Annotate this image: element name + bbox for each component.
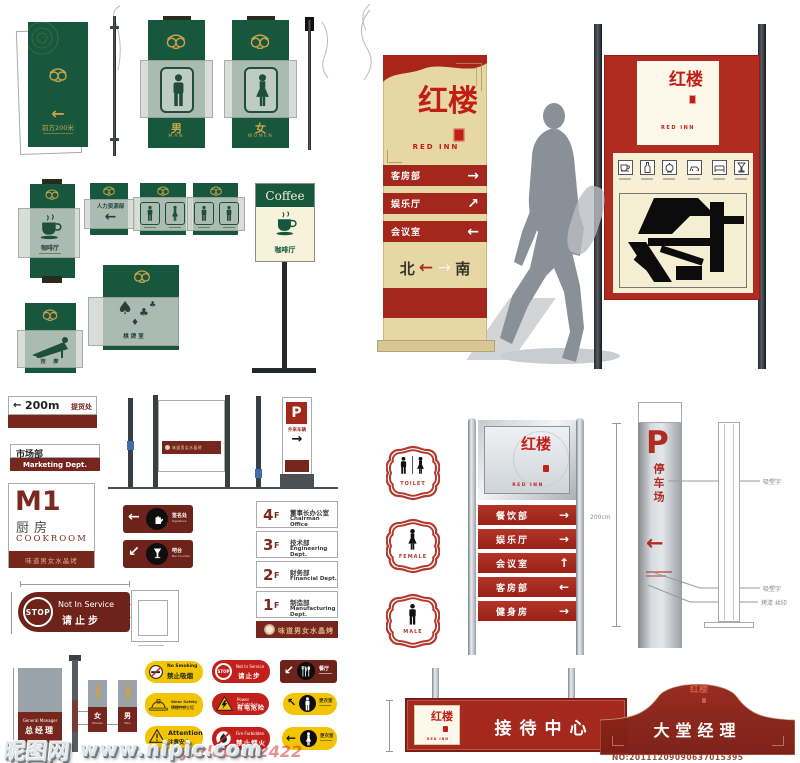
- brand-logo-cn-1: 红楼: [669, 65, 703, 90]
- slat-arrow: ←: [559, 580, 569, 594]
- amenity-bed-icon: [712, 160, 727, 175]
- cutlery-icon: [301, 666, 311, 677]
- coffee-overlay-plate: 咖啡厅: [18, 208, 80, 258]
- male-pictogram-icon: [146, 205, 154, 222]
- hanger-rod: [568, 668, 575, 700]
- amenity-kettle-icon: [662, 160, 677, 175]
- north-label: 北: [400, 258, 415, 279]
- lobby-manager-label: 大堂经理: [620, 717, 775, 741]
- corner-ornament: [612, 736, 624, 746]
- pylon-row: 客房部 →: [383, 165, 487, 186]
- chess-label: 棋牌室: [89, 332, 180, 340]
- slat-label: 客房部: [496, 581, 529, 594]
- ground-line: [108, 487, 338, 489]
- caption-line: [198, 227, 210, 228]
- floor-dept-en: Chairman Office: [290, 516, 337, 528]
- board-map-panel: [613, 153, 753, 293]
- cookroom-label-en: COOKROOM: [16, 534, 88, 544]
- floor-row: 2 F 财务部 Financial Dept.: [256, 561, 338, 588]
- floor-num: 4: [263, 506, 273, 524]
- frame-pole: [225, 395, 230, 488]
- no-smoking-cn: 禁止吸烟: [167, 670, 193, 680]
- floor-row: 4 F 董事长办公室 Chairman Office: [256, 501, 338, 528]
- female-pictogram-icon: [171, 205, 179, 222]
- slat-label: 会议室: [496, 557, 529, 570]
- wc-female-band: 女 Women: [88, 707, 107, 732]
- seal-stamp: [689, 95, 696, 104]
- seal-stamp: [702, 698, 706, 703]
- nipic-logo-watermark: 昵图网: [2, 734, 71, 763]
- serial-watermark: NO:20111209090637015395: [612, 753, 744, 762]
- slat-arrow: ↑: [559, 556, 569, 570]
- reception-label: 接待中心: [467, 714, 622, 739]
- brand-logo-en: RED INN: [637, 125, 719, 131]
- nipic-url-watermark: www.nipic.com: [79, 737, 264, 761]
- dimension-line: [20, 584, 130, 585]
- floor-dept-en: Financial Dept.: [290, 576, 337, 582]
- dimension-tick: [129, 581, 130, 587]
- dimension-line: [11, 592, 12, 634]
- site-map-graphic: [619, 193, 747, 288]
- restaurant-arrow: ↙: [284, 663, 294, 677]
- coffee-cup-icon: [273, 211, 298, 237]
- spec-outline-box: [138, 600, 168, 636]
- female-label-en: WOMEN: [232, 134, 289, 139]
- east-arrow: →: [437, 258, 451, 278]
- signature-arrow: ←: [128, 509, 140, 525]
- amenity-tea-icon: [618, 160, 633, 175]
- banner-text: 味道男女水晶烤: [172, 445, 202, 451]
- pylon-band: [285, 460, 309, 472]
- suit-icon: ♦: [131, 318, 139, 328]
- amenity-pet-icon: [687, 160, 702, 175]
- corner-ornament: [772, 736, 784, 746]
- slat-arrow: →: [559, 532, 569, 546]
- caption-line: [223, 227, 235, 228]
- female-oval-label: FEMALE: [386, 554, 440, 560]
- female-pictogram-icon: [94, 683, 102, 701]
- brand-roundel-icon: [264, 624, 275, 635]
- caption-line: [320, 740, 332, 741]
- bar-label: 吧台: [172, 547, 182, 554]
- pickup-sign-band: [8, 415, 97, 428]
- sign-bottom-tab: [42, 276, 62, 283]
- slat-row: 娱乐厅 →: [478, 529, 576, 549]
- wc-female-label-en: Women: [88, 721, 107, 725]
- gm-label-en: General Manager: [18, 718, 62, 723]
- parking-p: P: [291, 405, 301, 421]
- brand-logo-cn-1: 红楼: [418, 76, 478, 120]
- no-smoking-sign: No Smoking 禁止吸烟: [145, 661, 203, 683]
- cookroom-footer: 味道男女水晶烤: [25, 555, 78, 565]
- pylon-row-arrow: ←: [467, 224, 479, 240]
- locker-room-sign-m: ↖ 更衣室: [283, 693, 337, 715]
- reception-sign: 红楼 RED INN 接待中心: [405, 698, 627, 752]
- power-cn: 有电危险: [237, 703, 265, 712]
- male-label-en: MAN: [148, 134, 205, 139]
- leader-line: [78, 711, 88, 712]
- pylon-row: 会议室 ←: [383, 221, 487, 242]
- brand-emblem-icon: [131, 270, 153, 283]
- suit-icon: ♣: [149, 300, 156, 309]
- caption-line: [144, 227, 156, 228]
- male-pictogram-icon: [304, 697, 311, 711]
- bar-direction-sign: ↙ 吧台 Bar Counter: [123, 540, 193, 568]
- material-note: 吸塑字: [763, 584, 781, 593]
- pickup-200m-sign: ← 200m 提货处: [8, 396, 97, 415]
- parking-p: P: [646, 425, 669, 461]
- pylon-row-label: 会议室: [391, 225, 421, 238]
- toilet-oval-sign: [386, 445, 440, 501]
- floor-dept-en: Manufacturing Dept.: [290, 606, 337, 618]
- divider: [412, 456, 413, 474]
- toilet-oval-label: TOILET: [386, 481, 440, 487]
- pictogram-frame: [194, 202, 214, 225]
- stop-label-en: Not In Service: [58, 600, 114, 609]
- brand-emblem-icon: [101, 186, 117, 196]
- pole-clamp: [110, 26, 119, 29]
- caption-line: [319, 673, 332, 674]
- signature-direction-sign: ← 签名处 Signature: [123, 505, 193, 533]
- male-pictogram-icon: [399, 456, 408, 475]
- west-arrow: ←: [419, 258, 433, 278]
- massage-label: 按 摩: [18, 358, 84, 365]
- slat-label: 健身房: [496, 605, 529, 618]
- slat-label: 娱乐厅: [496, 533, 529, 546]
- banner-label: 前方200米: [28, 122, 88, 132]
- pictogram-frame: [219, 202, 239, 225]
- board-logo-panel: 红楼 RED INN: [637, 61, 719, 145]
- coffee-label: 咖啡厅: [19, 243, 81, 252]
- frame-pylon-post: [576, 418, 584, 655]
- toilet-mini-overlay: [187, 197, 245, 231]
- material-note: 烤漆 丝印: [761, 598, 787, 607]
- restaurant-direction-sign: ↙ 餐厅: [280, 660, 337, 683]
- wc-male-band: 男 Men: [118, 707, 137, 732]
- coffee-post-base: [252, 368, 316, 373]
- slat-row: 客房部 ←: [478, 577, 576, 597]
- locker-arrow: ↖: [287, 696, 296, 709]
- safety-helmet-sign: Wear Safety Helmet 请戴好安全帽: [145, 693, 203, 717]
- floor-suffix: F: [274, 601, 279, 610]
- pylon-side-view: [718, 422, 740, 622]
- marketing-label-en: Marketing Dept.: [23, 461, 87, 469]
- banner-arrow: ←: [28, 104, 88, 123]
- pickup-arrow: ←: [13, 400, 21, 411]
- hard-hat-icon: [149, 697, 168, 712]
- coffee-post-title: Coffee: [265, 189, 304, 203]
- brand-emblem-icon: [163, 34, 189, 49]
- signage-design-sheet: ← 前方200米 男 MAN 女 WOMEN 咖啡厅 人力资源部 ←: [0, 0, 800, 763]
- caption-line: [39, 253, 61, 254]
- signature-label: 签名处: [172, 512, 187, 519]
- pylon-base: [377, 340, 495, 352]
- hand-icon: [151, 513, 163, 525]
- slat-label: 餐饮部: [496, 509, 529, 522]
- brand-emblem-icon: [208, 186, 224, 196]
- male-pictogram-icon: [124, 683, 132, 701]
- banner-logo-icon: [165, 445, 170, 450]
- frame-board: [158, 400, 225, 472]
- cookroom-sign: M1 厨房 COOKROOM 味道男女水晶烤: [8, 483, 95, 568]
- amenity-bottle-icon: [640, 160, 655, 175]
- icon-caption-placeholder: [688, 178, 700, 180]
- brand-logo-en: RED INN: [415, 737, 461, 741]
- wine-glass-icon: [152, 548, 163, 560]
- female-pictogram-icon: [305, 732, 312, 746]
- brand-logo-en: RED INN: [485, 483, 571, 488]
- chess-overlay: ♠ ♣ ♦ ♣ 棋牌室: [88, 297, 179, 346]
- seal-stamp: [453, 128, 465, 142]
- slat-row: 健身房 →: [478, 601, 576, 621]
- frame-pylon-post: [468, 418, 476, 655]
- icon-caption-placeholder: [663, 178, 675, 180]
- male-pictogram-icon: [407, 603, 418, 626]
- female-pictogram-icon: [254, 72, 271, 109]
- coffee-post-label: 咖啡厅: [256, 245, 314, 255]
- hr-overlay-plate: 人力资源部 ←: [84, 199, 135, 229]
- caption-line: [319, 705, 331, 706]
- bar-arrow: ↙: [128, 544, 140, 560]
- slat-arrow: →: [559, 604, 569, 618]
- floor-row: 1 F 制造部 Manufacturing Dept.: [256, 591, 338, 618]
- marketing-sign-band: Marketing Dept.: [10, 458, 100, 471]
- brand-logo-en: RED INN: [384, 143, 488, 151]
- material-note: 吸塑字: [763, 477, 781, 486]
- power-substation-sign: Power Substation 有电危险: [212, 693, 269, 715]
- floor-suffix: F: [274, 571, 279, 580]
- signature-label-en: Signature: [172, 519, 186, 523]
- pole-band: [72, 700, 78, 732]
- wc-male-top: [118, 680, 137, 707]
- seal-stamp: [443, 726, 448, 732]
- dimension-tick: [20, 581, 21, 587]
- floor-row: 3 F 技术部 Engineering Dept.: [256, 531, 338, 558]
- icon-caption-placeholder: [735, 178, 747, 180]
- seal-stamp: [543, 465, 549, 472]
- floor-suffix: F: [274, 511, 279, 520]
- spec-caption-line: [138, 645, 164, 646]
- caption-line: [169, 227, 181, 228]
- parking-arrow: →: [283, 432, 311, 447]
- gm-sign-top: [18, 668, 62, 712]
- nis-cn: 请止步: [238, 670, 261, 680]
- nis-en: Not In Service: [236, 664, 264, 669]
- reception-logo-panel: 红楼 RED INN: [414, 705, 460, 745]
- pylon-row: 娱乐厅 ↗: [383, 193, 487, 214]
- fire-en: Fire Forbidden: [236, 731, 264, 736]
- cookroom-code: M1: [15, 486, 61, 517]
- marketing-sign-top: 市场部: [10, 444, 100, 458]
- dimension-tick: [612, 423, 621, 424]
- floor-num: 2: [263, 566, 273, 584]
- coffee-post-sign: Coffee 咖啡厅: [255, 183, 315, 262]
- female-pictogram-icon: [407, 528, 418, 551]
- male-pictogram-icon: [225, 205, 233, 222]
- brand-logo-cn-1: 红楼: [521, 433, 551, 454]
- pole-clamp: [110, 138, 119, 141]
- dimension-tick: [612, 626, 621, 627]
- sign-pole: [308, 20, 311, 150]
- pole-clamp-blue: [127, 441, 134, 450]
- post-banner: 味道男女水晶烤: [162, 441, 221, 454]
- icon-caption-placeholder: [619, 178, 631, 180]
- massage-icon: [31, 336, 71, 358]
- pictogram-frame: [165, 202, 185, 225]
- compass-row: 北 ← → 南: [383, 255, 487, 281]
- brand-emblem-icon: [155, 186, 171, 196]
- corner-ornament: [387, 150, 402, 163]
- pylon-row-arrow: ↗: [467, 196, 479, 212]
- brand-emblem-icon: [40, 309, 60, 321]
- pylon-row-label: 客房部: [391, 169, 421, 182]
- massage-overlay: 按 摩: [17, 330, 83, 368]
- directory-footer-text: 味道男女水晶烤: [278, 626, 334, 636]
- suit-icon: ♣: [139, 306, 149, 319]
- pickup-label: 提货处: [71, 402, 92, 412]
- stop-badge: STOP: [218, 669, 230, 674]
- male-pictogram-icon: [170, 72, 187, 109]
- pictogram-frame: [244, 67, 278, 113]
- pole-clamp-blue: [255, 469, 262, 478]
- stop-badge: STOP: [26, 608, 50, 617]
- helmet-cn: 请戴好安全帽: [171, 705, 194, 711]
- visitor-parking-pylon: P 外来车辆 →: [282, 397, 312, 477]
- wc-male-label: 男: [118, 711, 137, 721]
- dimension-line: [616, 423, 617, 627]
- frame-pylon-header: 红楼 RED INN: [478, 420, 576, 500]
- bar-label-en: Bar Counter: [172, 554, 190, 558]
- slat-arrow: →: [559, 508, 569, 522]
- banner-caption-line: [43, 133, 73, 134]
- female-overlay-plate: [224, 60, 297, 118]
- south-label: 南: [455, 258, 470, 279]
- electric-hazard-icon: [216, 696, 233, 711]
- pylon-row-arrow: →: [467, 168, 479, 184]
- restaurant-label: 餐厅: [319, 665, 329, 672]
- male-oval-label: MALE: [386, 629, 440, 635]
- dimension-tick: [386, 751, 393, 752]
- dimension-label: 200cm: [590, 514, 611, 521]
- suit-icon: ♠: [117, 298, 133, 319]
- attention-en: Attention: [168, 729, 203, 737]
- brand-emblem-icon: [247, 34, 273, 49]
- male-pictogram-icon: [200, 205, 208, 222]
- swirl-ornament: [28, 22, 88, 74]
- coffee-post-pole: [282, 262, 287, 370]
- sign-pole: [113, 16, 116, 156]
- no-smoking-icon: [148, 664, 164, 680]
- pictogram-frame: [160, 67, 194, 113]
- pylon-row-label: 娱乐厅: [391, 197, 421, 210]
- directory-footer: 味道男女水晶烤: [256, 621, 338, 638]
- brand-emblem-icon: [43, 189, 61, 200]
- amenity-bar-icon: [734, 160, 749, 175]
- female-pictogram-icon: [416, 456, 425, 475]
- locker-label: 更衣室: [319, 698, 333, 704]
- brand-emblem-icon: [46, 68, 70, 82]
- wc-female-label: 女: [88, 711, 107, 721]
- dimension-tick: [386, 700, 393, 701]
- brand-logo-cn-1: 红楼: [431, 708, 453, 724]
- pickup-distance: 200m: [25, 399, 59, 412]
- icon-caption-placeholder: [713, 178, 725, 180]
- pictogram-frame: [140, 202, 160, 225]
- not-in-service-mini-sign: STOP Not In Service 请止步: [212, 660, 270, 683]
- stop-sign: STOP Not In Service 请止步: [18, 592, 130, 632]
- dimension-line: [389, 700, 390, 752]
- pylon-lower-band: [383, 288, 487, 318]
- no-smoking-en: No Smoking: [167, 664, 197, 669]
- slat-row: 餐饮部 →: [478, 505, 576, 525]
- toilet-mini-overlay: [133, 197, 192, 231]
- floor-num: 3: [263, 536, 273, 554]
- slat-row: 会议室 ↑: [478, 553, 576, 573]
- hr-arrow: ←: [85, 209, 136, 225]
- floor-suffix: F: [274, 541, 279, 550]
- pylon-side-base: [704, 622, 754, 628]
- pylon-top-spec-box: [638, 402, 682, 423]
- locker-label: 更衣室: [320, 733, 334, 739]
- icon-caption-placeholder: [641, 178, 653, 180]
- wc-male-label-en: Men: [118, 721, 137, 725]
- green-banner-sign: ← 前方200米: [28, 22, 88, 147]
- pylon-base: [280, 474, 314, 487]
- floor-dept-en: Engineering Dept.: [290, 546, 337, 558]
- coffee-cup-icon: [37, 214, 63, 241]
- hanger-rod: [432, 668, 439, 700]
- map-board-sign: 红楼 RED INN: [604, 55, 760, 300]
- stop-label-cn: 请止步: [62, 612, 101, 627]
- male-overlay-plate: [140, 60, 213, 118]
- brand-logo-cn-1: 红楼: [690, 682, 708, 695]
- wc-female-top: [88, 680, 107, 707]
- floor-num: 1: [263, 596, 273, 614]
